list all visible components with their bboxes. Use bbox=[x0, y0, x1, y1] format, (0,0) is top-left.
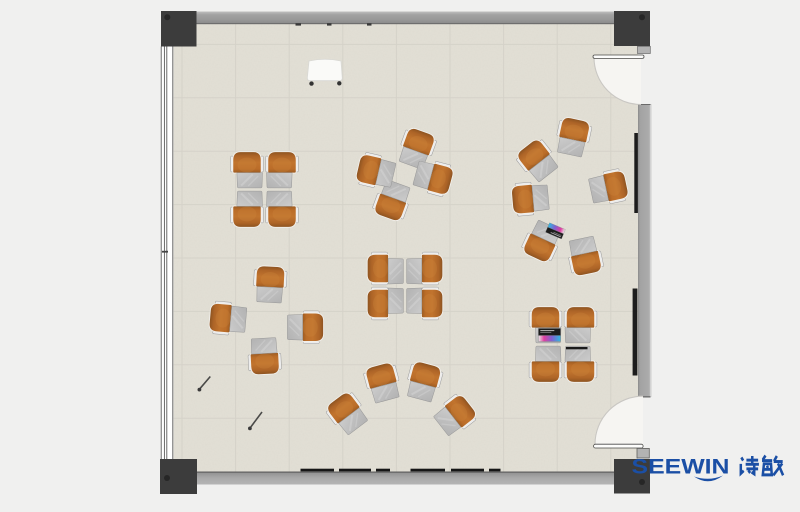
svg-text:SEEWIN: SEEWIN bbox=[632, 455, 730, 479]
